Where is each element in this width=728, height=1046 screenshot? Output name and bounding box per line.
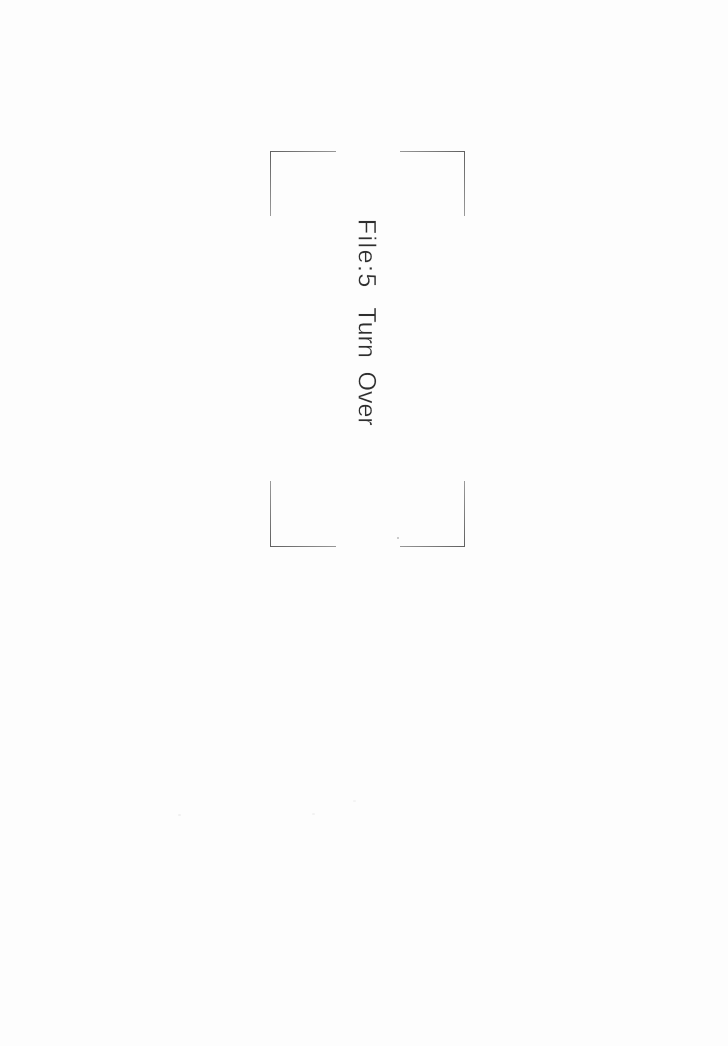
svg-text:File:5TurnOver: File:5TurnOver — [353, 219, 381, 426]
